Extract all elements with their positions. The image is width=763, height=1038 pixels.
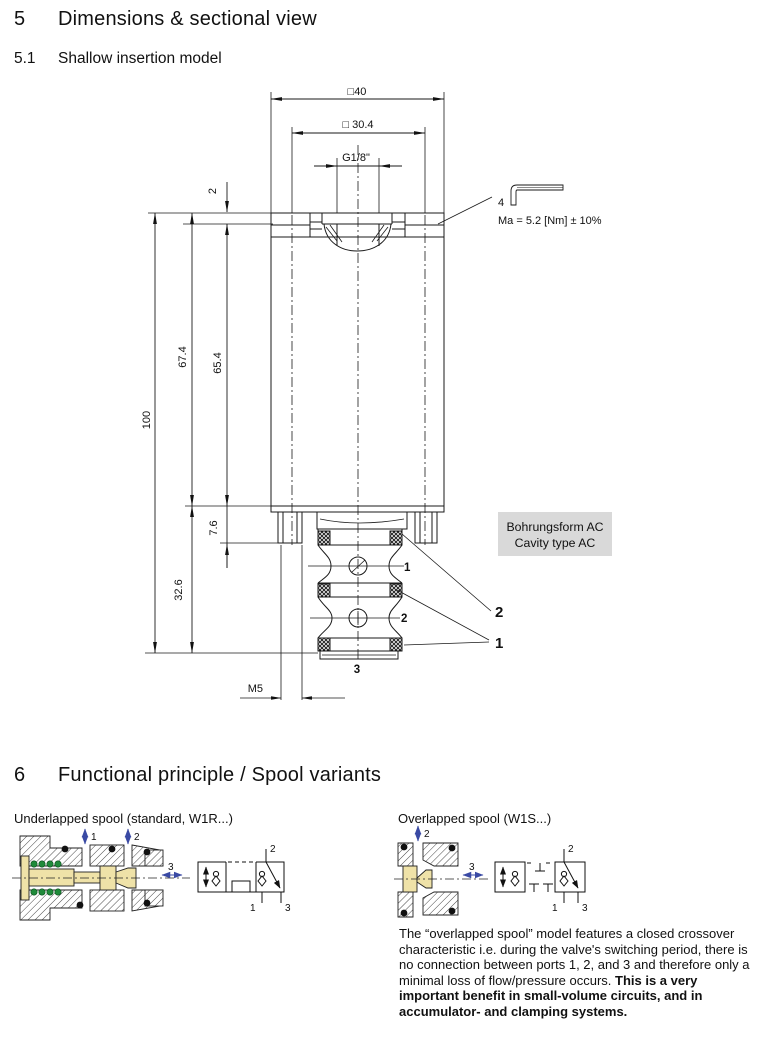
- dim-100-label: 100: [141, 411, 153, 429]
- underlapped-arrow-3-label: 3: [168, 862, 174, 873]
- datasheet-page: 5Dimensions & sectional view 5.1Shallow …: [0, 0, 763, 1038]
- dim-7-6-label: 7.6: [208, 520, 220, 535]
- dim-2-label: 2: [207, 188, 219, 194]
- port-1-label: 1: [404, 562, 411, 574]
- underlapped-symbol-port3-label: 3: [285, 903, 291, 914]
- overlapped-symbol-port3-label: 3: [582, 903, 588, 914]
- overlapped-symbol-port2-label: 2: [568, 844, 574, 855]
- valve-body: [271, 213, 444, 543]
- dim-40-label: □40: [348, 86, 367, 98]
- callout-seal-1-label: 1: [495, 635, 503, 652]
- callout-seal-2-label: 2: [495, 604, 503, 621]
- overlapped-cutaway: 2 3: [394, 826, 490, 917]
- port-3-label: 3: [354, 664, 360, 676]
- cavity-note-line2: Cavity type AC: [515, 536, 596, 550]
- torque-label: Ma = 5.2 [Nm] ± 10%: [498, 215, 602, 227]
- oring-seal-bottom-left: [318, 638, 330, 651]
- cartridge: [308, 512, 407, 659]
- overlapped-arrow-2-label: 2: [424, 829, 430, 840]
- technical-drawings: □40 □ 30.4 G1/8" 2 67.4 65.4 100 7.6 32.…: [0, 0, 763, 1038]
- main-sectional-drawing: [145, 92, 612, 700]
- overlapped-symbol: 2 1 3: [495, 844, 588, 914]
- oring-seal-bottom-right: [390, 638, 402, 651]
- dim-g18-label: G1/8": [342, 152, 370, 164]
- left-dimension-lines: [155, 182, 227, 653]
- dim-32-6-label: 32.6: [173, 579, 185, 600]
- underlapped-arrow-2-label: 2: [134, 832, 140, 843]
- underlapped-cutaway: 1 2 3: [12, 829, 190, 920]
- oring-seal-mid-right: [390, 584, 402, 597]
- main-drawing-labels: □40 □ 30.4 G1/8" 2 67.4 65.4 100 7.6 32.…: [141, 86, 604, 695]
- dim-30-4-label: □ 30.4: [342, 119, 373, 131]
- m5-dimension: [240, 545, 345, 700]
- hex-key-icon: [511, 185, 563, 205]
- underlapped-symbol-port1-label: 1: [250, 903, 256, 914]
- dim-65-4-label: 65.4: [212, 352, 224, 373]
- oring-seal-mid-left: [318, 584, 330, 597]
- underlapped-symbol: 2 1 3: [198, 844, 291, 914]
- overlapped-symbol-port1-label: 1: [552, 903, 558, 914]
- mounting-bolts: [278, 512, 437, 543]
- overlapped-arrow-3-label: 3: [469, 862, 475, 873]
- port-2-label: 2: [401, 613, 407, 625]
- underlapped-arrow-1-label: 1: [91, 832, 97, 843]
- dim-67-4-label: 67.4: [177, 346, 189, 367]
- oring-seal-top-left: [318, 531, 330, 545]
- hex-key-size-label: 4: [498, 197, 504, 209]
- underlapped-symbol-port2-label: 2: [270, 844, 276, 855]
- dim-m5-label: M5: [248, 683, 263, 695]
- oring-seal-top-right: [390, 531, 402, 545]
- cavity-note-line1: Bohrungsform AC: [506, 520, 603, 534]
